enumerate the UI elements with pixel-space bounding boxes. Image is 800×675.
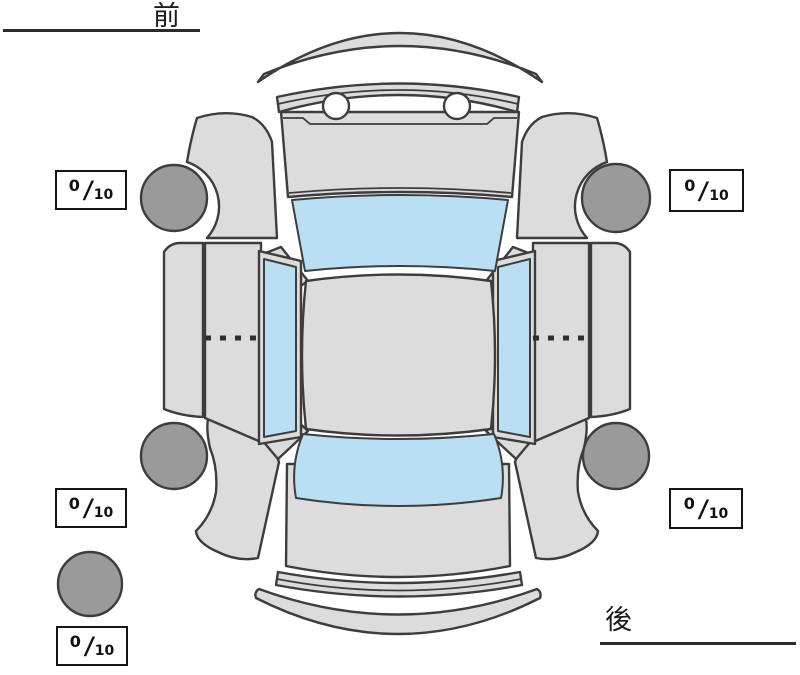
- front-bumper: [258, 33, 542, 82]
- rear-label: 後: [605, 607, 632, 634]
- left-headlight: [323, 93, 349, 119]
- right-headlight: [444, 93, 470, 119]
- tread-depth-slash: /: [698, 179, 710, 203]
- left-side-window: [264, 259, 296, 437]
- spare-tire: [58, 552, 122, 616]
- tread-depth-box-front-right[interactable]: 0 / 10: [669, 169, 744, 212]
- front-label: 前: [153, 3, 180, 30]
- tread-depth-max: 10: [95, 643, 114, 659]
- tread-depth-value: 0: [69, 176, 80, 195]
- car-top-view: [0, 0, 800, 675]
- vehicle-inspection-diagram: 前 後 0 / 10 0 / 10 0 / 10 0 / 10 0 / 10: [0, 0, 800, 675]
- front-label-underline: [3, 29, 200, 32]
- tread-depth-value: 0: [684, 494, 695, 513]
- tread-depth-box-front-left[interactable]: 0 / 10: [55, 170, 127, 210]
- tread-depth-value: 0: [684, 176, 695, 195]
- right-side-window: [498, 259, 530, 437]
- tread-depth-box-spare[interactable]: 0 / 10: [56, 626, 128, 666]
- windshield: [292, 195, 508, 271]
- wheel-front-left: [141, 165, 207, 231]
- tread-depth-max: 10: [94, 187, 113, 203]
- tread-depth-box-rear-right[interactable]: 0 / 10: [669, 488, 743, 529]
- tread-depth-value: 0: [69, 494, 80, 513]
- tread-depth-slash: /: [82, 496, 94, 520]
- right-door-panel: [533, 243, 589, 442]
- rear-label-underline: [600, 642, 796, 645]
- wheel-front-right: [582, 164, 650, 232]
- rear-window: [294, 434, 503, 506]
- tread-depth-max: 10: [94, 505, 113, 521]
- tread-depth-max: 10: [709, 188, 728, 204]
- left-rocker-panel: [164, 243, 203, 417]
- tread-depth-slash: /: [82, 178, 94, 202]
- right-rocker-panel: [591, 243, 630, 417]
- tread-depth-slash: /: [83, 634, 95, 658]
- wheel-rear-left: [141, 423, 207, 489]
- tread-depth-box-rear-left[interactable]: 0 / 10: [55, 488, 127, 528]
- tread-depth-slash: /: [697, 497, 709, 521]
- left-door-panel: [205, 243, 261, 442]
- tread-depth-value: 0: [70, 632, 81, 651]
- tread-depth-max: 10: [709, 506, 728, 522]
- roof: [302, 275, 495, 436]
- wheel-rear-right: [583, 423, 649, 489]
